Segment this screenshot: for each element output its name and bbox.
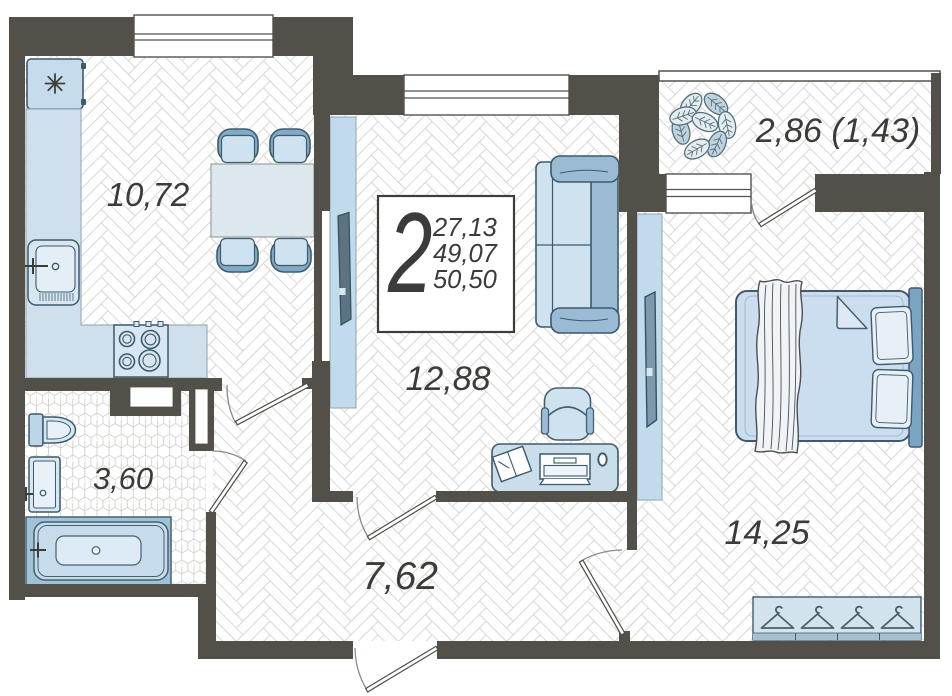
svg-text:12,88: 12,88 — [405, 360, 490, 398]
svg-text:2: 2 — [387, 189, 432, 316]
svg-text:27,13: 27,13 — [432, 214, 497, 242]
svg-text:3,60: 3,60 — [93, 461, 153, 496]
svg-text:10,72: 10,72 — [107, 176, 190, 213]
svg-text:49,07: 49,07 — [433, 240, 498, 268]
svg-text:2,86 (1,43): 2,86 (1,43) — [755, 112, 920, 150]
svg-text:50,50: 50,50 — [433, 266, 497, 294]
svg-text:7,62: 7,62 — [362, 555, 438, 598]
svg-text:14,25: 14,25 — [724, 514, 809, 552]
